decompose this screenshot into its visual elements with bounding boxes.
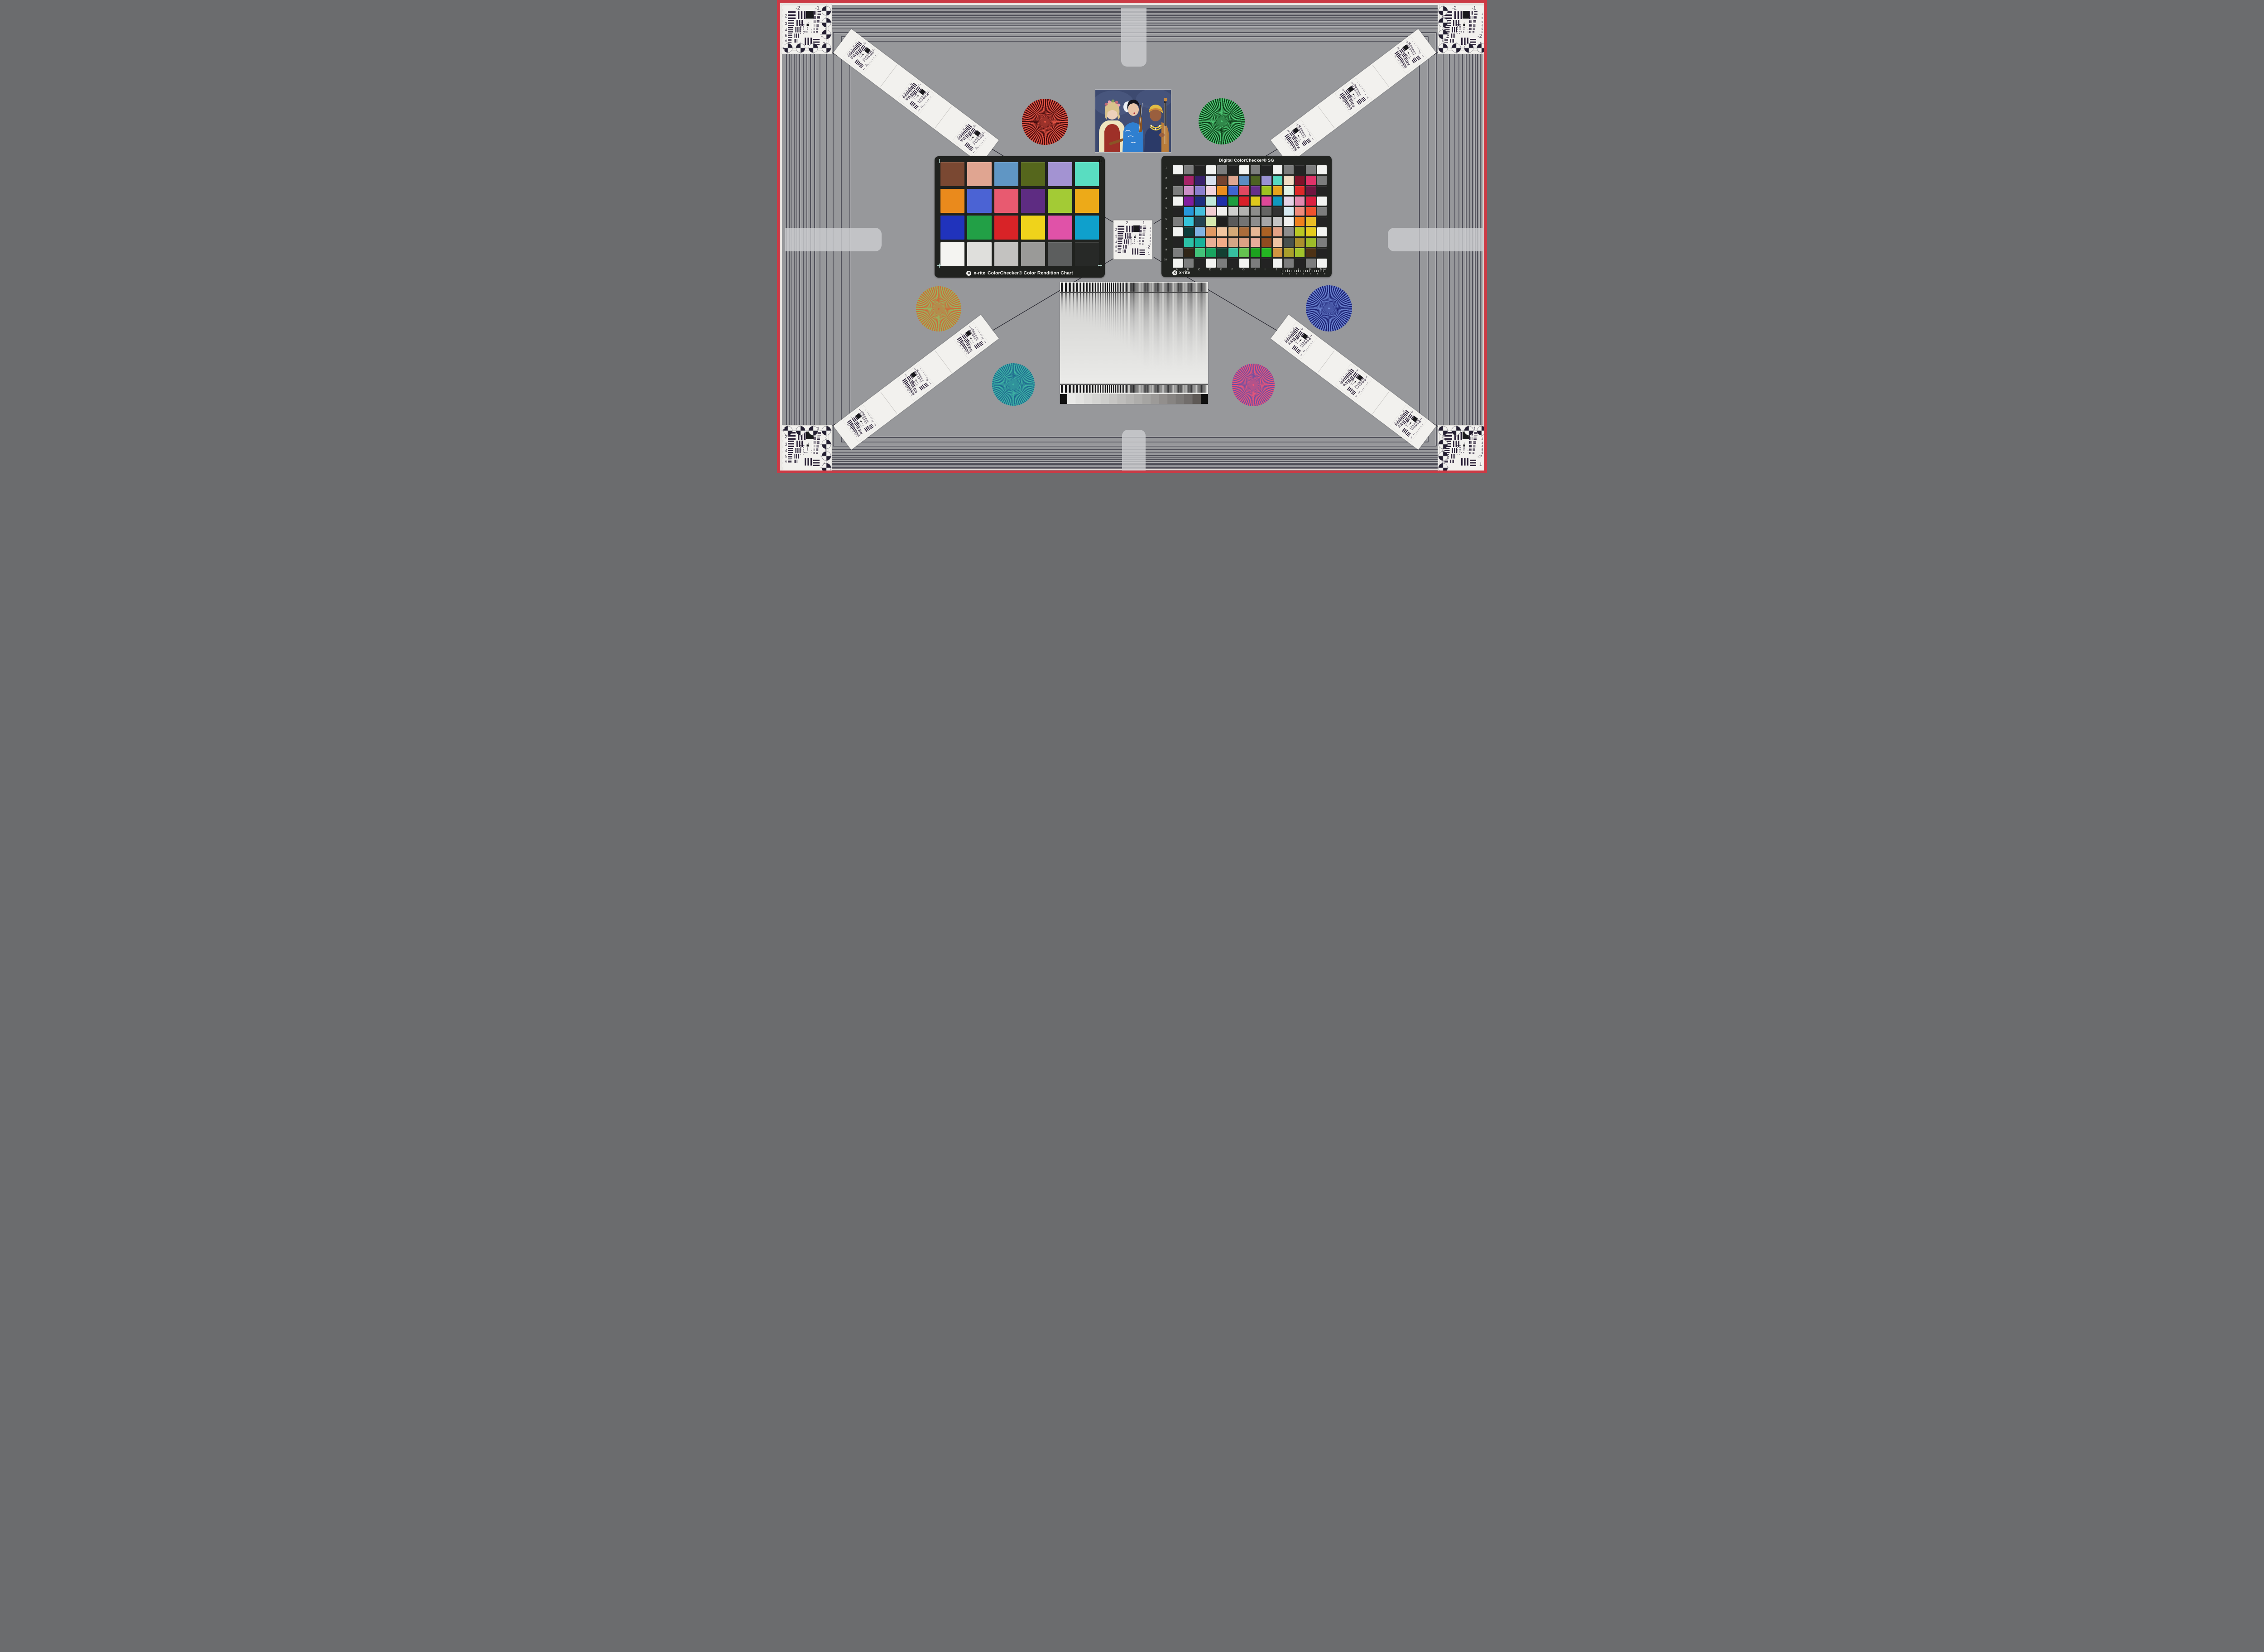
edge-tick — [782, 470, 785, 473]
sg-col-label: I — [1265, 269, 1266, 271]
gray-step — [1101, 394, 1109, 404]
color-patch — [1251, 259, 1261, 268]
camera-test-chart-scene: -2-1234561234560101-21 ✕ x-rite ColorChe… — [777, 0, 1487, 473]
color-patch — [967, 216, 991, 240]
color-patch — [1184, 207, 1194, 216]
color-patch — [1295, 238, 1305, 247]
sg-row-label: 5 — [1162, 207, 1167, 210]
color-patch — [1184, 248, 1194, 257]
wedge-strip-separator — [1318, 351, 1334, 373]
color-patch — [1217, 176, 1227, 185]
color-patch — [1239, 186, 1249, 195]
colorchecker-classic-patch-grid — [940, 162, 1099, 266]
corner-target-card — [781, 4, 832, 54]
color-patch — [1217, 197, 1227, 206]
color-patch — [1075, 189, 1099, 213]
color-patch — [1295, 176, 1305, 185]
edge-tick — [1485, 453, 1487, 456]
color-patch — [1251, 238, 1261, 247]
color-patch — [1195, 176, 1205, 185]
color-patch — [1075, 216, 1099, 240]
edge-tick — [782, 28, 785, 31]
color-patch — [1317, 207, 1327, 216]
color-patch — [1173, 238, 1183, 247]
color-patch — [1217, 217, 1227, 226]
edge-tick — [782, 22, 785, 25]
color-patch — [1317, 176, 1327, 185]
gray-step — [1167, 394, 1176, 404]
corner-target-card — [781, 425, 832, 473]
sg-ruler-number: 6 — [1324, 273, 1325, 275]
color-patch — [1195, 238, 1205, 247]
edge-tick — [782, 44, 785, 47]
color-patch — [1184, 259, 1194, 268]
color-patch — [1184, 165, 1194, 174]
color-patch — [1173, 165, 1183, 174]
sg-col-label: C — [1198, 269, 1200, 271]
siemens-star-red — [1022, 99, 1068, 145]
edge-tick — [782, 33, 785, 36]
corner-target-card — [1438, 4, 1487, 54]
color-patch — [1217, 227, 1227, 236]
sg-col-label: L — [1298, 269, 1300, 271]
color-patch — [1206, 207, 1216, 216]
gray-step — [1159, 394, 1168, 404]
gray-step — [1151, 394, 1159, 404]
color-patch — [1173, 186, 1183, 195]
color-patch — [994, 162, 1018, 186]
color-patch — [1295, 186, 1305, 195]
sg-row-label: 10 — [1162, 259, 1167, 261]
sg-col-label: J — [1276, 269, 1277, 271]
edge-tick — [1485, 442, 1487, 446]
color-patch — [1228, 217, 1238, 226]
sg-col-label: G — [1242, 269, 1245, 271]
color-patch — [1317, 197, 1327, 206]
color-patch — [1217, 248, 1227, 257]
color-patch — [1284, 207, 1294, 216]
edge-tick — [782, 11, 785, 14]
sg-col-label: N — [1320, 269, 1322, 271]
color-patch — [1262, 248, 1271, 257]
edge-tick — [1485, 44, 1487, 47]
edge-tick — [782, 459, 785, 462]
color-patch — [1273, 248, 1283, 257]
edge-tab-top — [1121, 8, 1146, 67]
color-patch — [1195, 248, 1205, 257]
color-patch — [1317, 186, 1327, 195]
siemens-star-green — [1199, 98, 1245, 144]
color-patch — [1317, 217, 1327, 226]
color-patch — [1251, 176, 1261, 185]
color-patch — [1239, 165, 1249, 174]
edge-tab-right — [1388, 228, 1485, 251]
color-patch — [1239, 176, 1249, 185]
sg-row-label: 7 — [1162, 228, 1167, 231]
color-patch — [994, 189, 1018, 213]
sg-col-label: K — [1287, 269, 1289, 271]
color-patch — [1306, 238, 1316, 247]
color-patch — [1317, 238, 1327, 247]
wedge-strip-separator — [880, 65, 897, 87]
sg-ruler-number: 5 — [1317, 273, 1319, 275]
gray-step — [1067, 394, 1076, 404]
corner-target-bottom-left — [781, 425, 832, 473]
color-patch — [1262, 197, 1271, 206]
gray-step — [1184, 394, 1193, 404]
edge-tick — [1485, 28, 1487, 31]
edge-tick — [1485, 22, 1487, 25]
color-patch — [1239, 259, 1249, 268]
color-patch — [1195, 217, 1205, 226]
color-patch — [1239, 207, 1249, 216]
color-patch — [1021, 162, 1045, 186]
frequency-sweep-chart — [1060, 282, 1208, 404]
test-photo-three-musicians — [1095, 90, 1171, 152]
color-patch — [1021, 242, 1045, 266]
color-patch — [1295, 259, 1305, 268]
wedge-strip-separator — [1318, 106, 1334, 128]
gray-step — [1092, 394, 1101, 404]
color-patch — [1184, 197, 1194, 206]
color-patch — [1217, 165, 1227, 174]
color-patch — [967, 189, 991, 213]
edge-tick — [1485, 426, 1487, 429]
color-patch — [1306, 227, 1316, 236]
sg-ruler-number: 4 — [1310, 273, 1311, 275]
edge-tick — [1485, 49, 1487, 53]
color-patch — [1273, 238, 1283, 247]
color-patch — [1295, 197, 1305, 206]
color-patch — [1284, 176, 1294, 185]
color-patch — [1251, 248, 1261, 257]
color-patch — [1206, 227, 1216, 236]
edge-tick — [782, 464, 785, 467]
sg-row-label: 1 — [1162, 167, 1167, 169]
color-patch — [1048, 216, 1072, 240]
edge-tick — [782, 426, 785, 429]
color-patch — [1273, 176, 1283, 185]
color-patch — [1262, 176, 1271, 185]
edge-tick — [782, 448, 785, 451]
color-patch — [967, 242, 991, 266]
colorchecker-sg-chart: Digital ColorChecker® SG ✕ x-rite mm 012… — [1161, 156, 1332, 277]
color-patch — [1306, 207, 1316, 216]
color-patch — [1284, 259, 1294, 268]
sg-col-label: B — [1187, 269, 1189, 271]
color-patch — [1184, 217, 1194, 226]
color-patch — [1251, 197, 1261, 206]
color-patch — [1217, 259, 1227, 268]
corner-target-top-left — [781, 4, 832, 54]
sg-row-label: 2 — [1162, 177, 1167, 180]
color-patch — [940, 162, 964, 186]
gray-step — [1176, 394, 1185, 404]
color-patch — [1173, 197, 1183, 206]
edge-tick — [782, 17, 785, 20]
corner-target-card — [1438, 425, 1487, 473]
edge-tick — [1485, 470, 1487, 473]
gray-step — [1126, 394, 1134, 404]
siemens-star-orange-green — [916, 286, 961, 331]
color-patch — [1306, 176, 1316, 185]
colorchecker-sg-title: Digital ColorChecker® SG — [1161, 158, 1332, 163]
color-patch — [1306, 186, 1316, 195]
color-patch — [1306, 259, 1316, 268]
sg-row-label: 9 — [1162, 249, 1167, 251]
color-patch — [1262, 238, 1271, 247]
color-patch — [1075, 162, 1099, 186]
color-patch — [1228, 259, 1238, 268]
sg-col-label: M — [1309, 269, 1311, 271]
color-patch — [1295, 248, 1305, 257]
color-patch — [1284, 238, 1294, 247]
color-patch — [940, 242, 964, 266]
color-patch — [1284, 248, 1294, 257]
gray-step — [1109, 394, 1118, 404]
color-patch — [1173, 259, 1183, 268]
color-patch — [1228, 176, 1238, 185]
color-patch — [1195, 259, 1205, 268]
color-patch — [1251, 217, 1261, 226]
color-patch — [967, 162, 991, 186]
color-patch — [1206, 197, 1216, 206]
registration-cross-icon — [937, 264, 941, 268]
color-patch — [1217, 207, 1227, 216]
gray-step — [1118, 394, 1126, 404]
gray-step — [1142, 394, 1151, 404]
color-patch — [1284, 165, 1294, 174]
color-patch — [1273, 207, 1283, 216]
color-patch — [1317, 227, 1327, 236]
color-patch — [1273, 186, 1283, 195]
color-patch — [1206, 176, 1216, 185]
edge-tick — [782, 49, 785, 53]
edge-tick — [1485, 432, 1487, 435]
color-patch — [1273, 165, 1283, 174]
color-patch — [1206, 186, 1216, 195]
color-patch — [1173, 248, 1183, 257]
siemens-star-teal — [992, 363, 1035, 406]
registration-cross-icon — [937, 159, 941, 163]
color-patch — [1021, 216, 1045, 240]
color-patch — [1295, 217, 1305, 226]
gray-step — [1134, 394, 1143, 404]
gray-step — [1084, 394, 1093, 404]
color-patch — [1262, 207, 1271, 216]
sg-ruler-numbers: 0123456 — [1282, 273, 1325, 275]
color-patch — [1021, 189, 1045, 213]
color-patch — [1273, 197, 1283, 206]
registration-cross-icon — [1098, 159, 1102, 163]
color-patch — [1228, 227, 1238, 236]
color-patch — [1251, 165, 1261, 174]
siemens-star-blue — [1306, 285, 1352, 331]
wedge-strip-separator — [1372, 392, 1389, 414]
color-patch — [1173, 217, 1183, 226]
xrite-logo-icon: ✕ — [966, 271, 971, 276]
color-patch — [1262, 227, 1271, 236]
edge-tick — [1485, 17, 1487, 20]
corner-target-top-right — [1438, 4, 1487, 54]
edge-tick — [1485, 6, 1487, 9]
colorchecker-classic-caption: ✕ x-rite ColorChecker® Color Rendition C… — [935, 270, 1105, 276]
sg-row-label: 8 — [1162, 238, 1167, 241]
color-patch — [994, 216, 1018, 240]
color-patch — [1195, 197, 1205, 206]
registration-cross-icon — [1098, 264, 1102, 268]
edge-tick — [1485, 38, 1487, 42]
color-patch — [1173, 227, 1183, 236]
color-patch — [1184, 186, 1194, 195]
color-patch — [1195, 186, 1205, 195]
color-patch — [1228, 207, 1238, 216]
color-patch — [1195, 165, 1205, 174]
color-patch — [1048, 189, 1072, 213]
color-patch — [1284, 197, 1294, 206]
edge-tick — [782, 38, 785, 42]
color-patch — [1184, 176, 1194, 185]
sg-ruler-number: 0 — [1282, 273, 1283, 275]
color-patch — [1306, 197, 1316, 206]
color-patch — [1284, 227, 1294, 236]
color-patch — [1195, 207, 1205, 216]
wedge-strip-separator — [880, 392, 897, 414]
color-patch — [994, 242, 1018, 266]
gray-step — [1075, 394, 1084, 404]
edge-tab-left — [785, 228, 882, 251]
color-patch — [1284, 186, 1294, 195]
color-patch — [1228, 248, 1238, 257]
edge-tick — [1485, 11, 1487, 14]
color-patch — [1048, 162, 1072, 186]
edge-tick — [782, 442, 785, 446]
color-patch — [1295, 165, 1305, 174]
wedge-strip-separator — [935, 351, 952, 373]
color-patch — [1306, 165, 1316, 174]
color-patch — [1195, 227, 1205, 236]
color-patch — [1317, 248, 1327, 257]
sg-ruler-number: 2 — [1296, 273, 1297, 275]
color-patch — [1273, 227, 1283, 236]
color-patch — [1273, 259, 1283, 268]
color-patch — [1206, 238, 1216, 247]
color-patch — [1306, 217, 1316, 226]
color-patch — [1262, 165, 1271, 174]
edge-tick — [782, 6, 785, 9]
edge-tick — [1485, 459, 1487, 462]
edge-tick — [1485, 437, 1487, 440]
color-patch — [1273, 217, 1283, 226]
color-patch — [1184, 238, 1194, 247]
sg-row-label: 3 — [1162, 187, 1167, 190]
color-patch — [1228, 238, 1238, 247]
colorchecker-classic-caption-text: ColorChecker® Color Rendition Chart — [988, 270, 1073, 276]
color-patch — [1206, 259, 1216, 268]
sg-col-label: A — [1176, 269, 1178, 271]
color-patch — [1295, 227, 1305, 236]
edge-tick — [1485, 33, 1487, 36]
color-patch — [1295, 207, 1305, 216]
color-patch — [1075, 242, 1099, 266]
corner-target-bottom-right — [1438, 425, 1487, 473]
color-patch — [1239, 217, 1249, 226]
edge-tick — [782, 453, 785, 456]
color-patch — [1217, 238, 1227, 247]
color-patch — [1173, 176, 1183, 185]
colorchecker-classic-chart: ✕ x-rite ColorChecker® Color Rendition C… — [935, 156, 1105, 278]
color-patch — [1206, 248, 1216, 257]
color-patch — [1239, 238, 1249, 247]
edge-tab-bottom — [1122, 430, 1146, 471]
color-patch — [1173, 207, 1183, 216]
sg-row-label: 4 — [1162, 197, 1167, 200]
color-patch — [1217, 186, 1227, 195]
sg-ruler-unit: mm — [1323, 268, 1327, 270]
color-patch — [1228, 165, 1238, 174]
edge-tick — [1485, 448, 1487, 451]
edge-tick — [782, 437, 785, 440]
color-patch — [1284, 217, 1294, 226]
color-patch — [1239, 197, 1249, 206]
center-resolution-target — [1113, 220, 1152, 259]
color-patch — [1228, 197, 1238, 206]
color-patch — [1262, 186, 1271, 195]
color-patch — [1262, 217, 1271, 226]
sg-col-label: H — [1254, 269, 1256, 271]
color-patch — [1262, 259, 1271, 268]
color-patch — [1206, 165, 1216, 174]
color-patch — [1206, 217, 1216, 226]
color-patch — [1239, 227, 1249, 236]
color-patch — [1317, 165, 1327, 174]
color-patch — [1228, 186, 1238, 195]
gray-step — [1193, 394, 1201, 404]
sg-col-label: E — [1220, 269, 1222, 271]
sg-col-label: D — [1209, 269, 1211, 271]
color-patch — [1184, 227, 1194, 236]
sg-row-label: 6 — [1162, 218, 1167, 221]
sg-ruler-number: 3 — [1303, 273, 1305, 275]
color-patch — [940, 216, 964, 240]
color-patch — [1251, 227, 1261, 236]
color-patch — [1048, 242, 1072, 266]
edge-tick — [782, 432, 785, 435]
sg-ruler-number: 1 — [1289, 273, 1290, 275]
color-patch — [1251, 186, 1261, 195]
color-patch — [1251, 207, 1261, 216]
wedge-strip-separator — [935, 106, 952, 128]
sg-col-label: F — [1232, 269, 1233, 271]
colorchecker-classic-brand: x-rite — [974, 270, 985, 276]
siemens-star-magenta — [1232, 364, 1275, 406]
color-patch — [1317, 259, 1327, 268]
colorchecker-sg-patch-grid — [1173, 165, 1327, 268]
wedge-strip-separator — [1372, 65, 1389, 87]
color-patch — [940, 189, 964, 213]
edge-tick — [1485, 464, 1487, 467]
color-patch — [1239, 248, 1249, 257]
color-patch — [1306, 248, 1316, 257]
